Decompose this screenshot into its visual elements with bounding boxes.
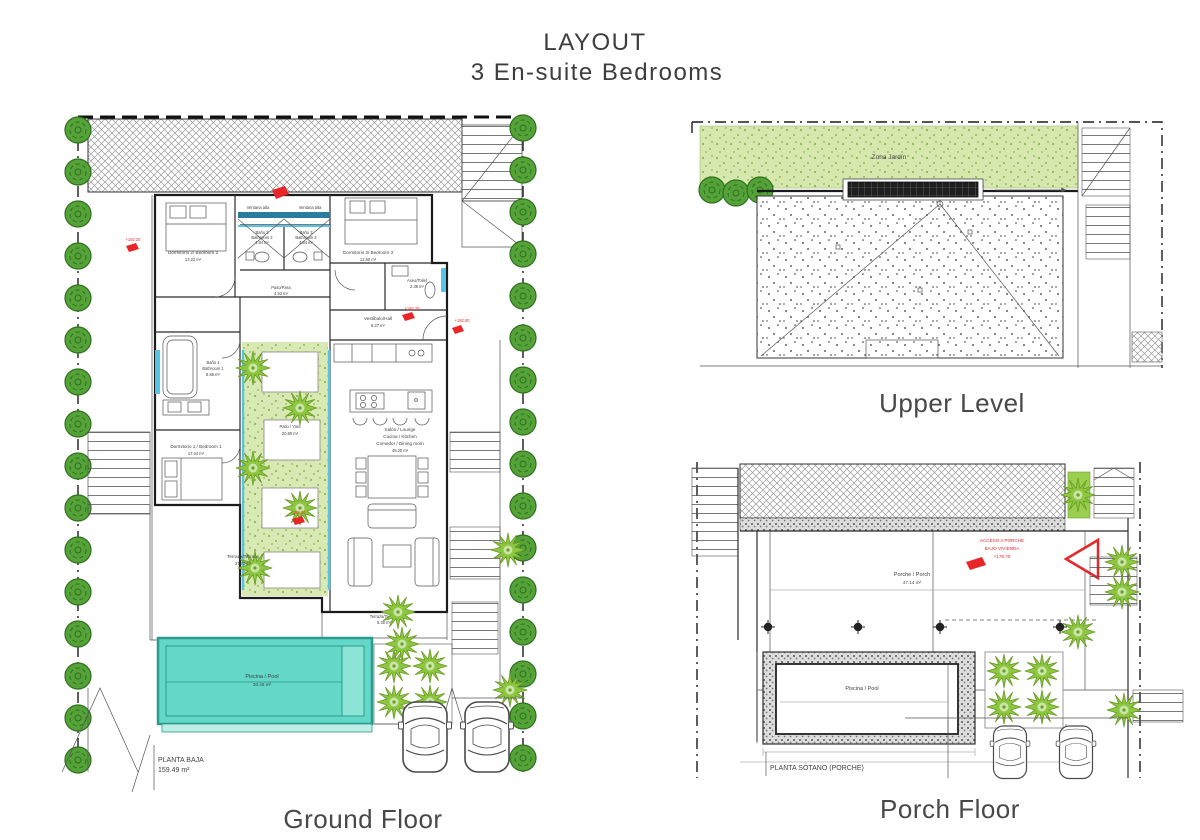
window-note-left: Ventana alta: [247, 205, 270, 210]
bath1-window: [155, 350, 160, 394]
lounge-label-2: Cocina / Kitchen: [383, 434, 417, 439]
pass-area: 4.53 m²: [274, 291, 289, 296]
level-marker-living: +182.20: [291, 510, 307, 515]
column: [933, 620, 947, 634]
column: [851, 620, 865, 634]
stairs-top-right: [462, 125, 522, 247]
bedroom2-label: Dormitorio 2/ Bedroom 2: [168, 250, 218, 255]
bath3-area: 4.84 m²: [299, 240, 314, 245]
bedroom1-label: Dormitorio 1 / Bedroom 1: [170, 444, 222, 449]
pass-label: Paso/Pass: [271, 285, 291, 290]
stairs-left: [88, 432, 150, 514]
floor-plan-sheet: LAYOUT 3 En-suite Bedrooms Patio / Yard …: [0, 0, 1200, 840]
pool-label: Piscina / Pool: [245, 674, 278, 680]
terrace-area: 37.72 m²: [235, 561, 252, 566]
garden-label: Zona Jardín: [872, 154, 907, 161]
lounge-label-3: Comedor / Dining room: [376, 441, 424, 446]
hip-roof: [757, 196, 1063, 358]
hall-area: 8.27 m²: [371, 323, 386, 328]
plans-canvas: LAYOUT 3 En-suite Bedrooms Patio / Yard …: [0, 0, 1200, 840]
gravel-strip: [740, 518, 1065, 531]
bath1-sub: Bathroom 1: [202, 366, 224, 371]
access-note: ACCESO A PORCHE BAJO VIVIENDA +179.70: [966, 538, 1098, 578]
porch-floor-plan: Porche / Porch 47.14 m² ACCESO A PORCHE …: [692, 462, 1183, 779]
bedroom3-label: Dormitorio 3/ Bedroom 3: [343, 250, 393, 255]
level-marker-entry: +182.00: [455, 318, 471, 323]
access-line-2: BAJO VIVIENDA: [985, 546, 1021, 551]
column: [761, 620, 775, 634]
porch-label: Porche / Porch: [894, 572, 930, 578]
porch-left-stairs: [692, 468, 738, 556]
porch-hatch-band: [740, 464, 1065, 518]
bath1-area: 8.86 m²: [206, 372, 221, 377]
toilet-label: Aseo/Toilet: [407, 278, 428, 283]
level-marker-hall: +182.20: [405, 306, 421, 311]
tree: [723, 180, 749, 206]
page-title: LAYOUT: [543, 29, 646, 56]
lounge-label-1: Salón / Lounge: [385, 427, 416, 432]
ground-floor-plan: Patio / Yard 20.80 m² Ventana alta Venta…: [62, 115, 536, 792]
porch-area: 47.14 m²: [903, 580, 922, 585]
terrace2-area: 5.30 m²: [377, 620, 392, 625]
hall-label: Vestíbulo/Hall: [364, 316, 392, 321]
driveway-hatch: [88, 119, 462, 192]
bath2-area: 4.84 m²: [255, 240, 270, 245]
level-marker-left: +182.20: [126, 237, 142, 242]
bath1-label: Baño 1: [207, 360, 221, 365]
patio-label: Patio / Yard: [279, 424, 301, 429]
bedroom1-area: 17.34 m²: [188, 451, 205, 456]
patio-area: 20.80 m²: [282, 431, 299, 436]
upper-level-caption: Upper Level: [879, 388, 1025, 418]
side-steps: [450, 432, 500, 654]
porch-plan-label: PLANTA SÓTANO (PORCHE): [770, 763, 864, 772]
access-line-3: +179.70: [994, 554, 1011, 559]
plan-area-label: 159.49 m²: [158, 767, 190, 774]
terrace-label: Terraza/Terrace: [227, 554, 259, 559]
porch-pool-label: Piscina / Pool: [845, 686, 878, 692]
access-line-1: ACCESO A PORCHE: [980, 538, 1024, 543]
porch-planter: [985, 652, 1063, 728]
window-note-right: Ventana alta: [299, 205, 322, 210]
bedroom2-area: 13.22 m²: [185, 257, 202, 262]
tree: [699, 177, 725, 203]
pool: Piscina / Pool 30.45 m²: [158, 638, 372, 732]
page-subtitle: 3 En-suite Bedrooms: [471, 59, 724, 86]
plan-label: PLANTA BAJA: [158, 757, 204, 764]
upper-level-plan: Zona Jardín: [692, 122, 1162, 368]
ground-floor-caption: Ground Floor: [283, 804, 442, 834]
pool-area: 30.45 m²: [253, 682, 272, 687]
porch-floor-caption: Porch Floor: [880, 794, 1020, 824]
toilet-area: 2.38 m²: [410, 284, 425, 289]
lounge-area: 49.20 m²: [392, 448, 409, 453]
bedroom3-area: 12.60 m²: [360, 257, 377, 262]
porch-pool: Piscina / Pool: [763, 652, 975, 744]
toilet-window: [441, 268, 446, 292]
